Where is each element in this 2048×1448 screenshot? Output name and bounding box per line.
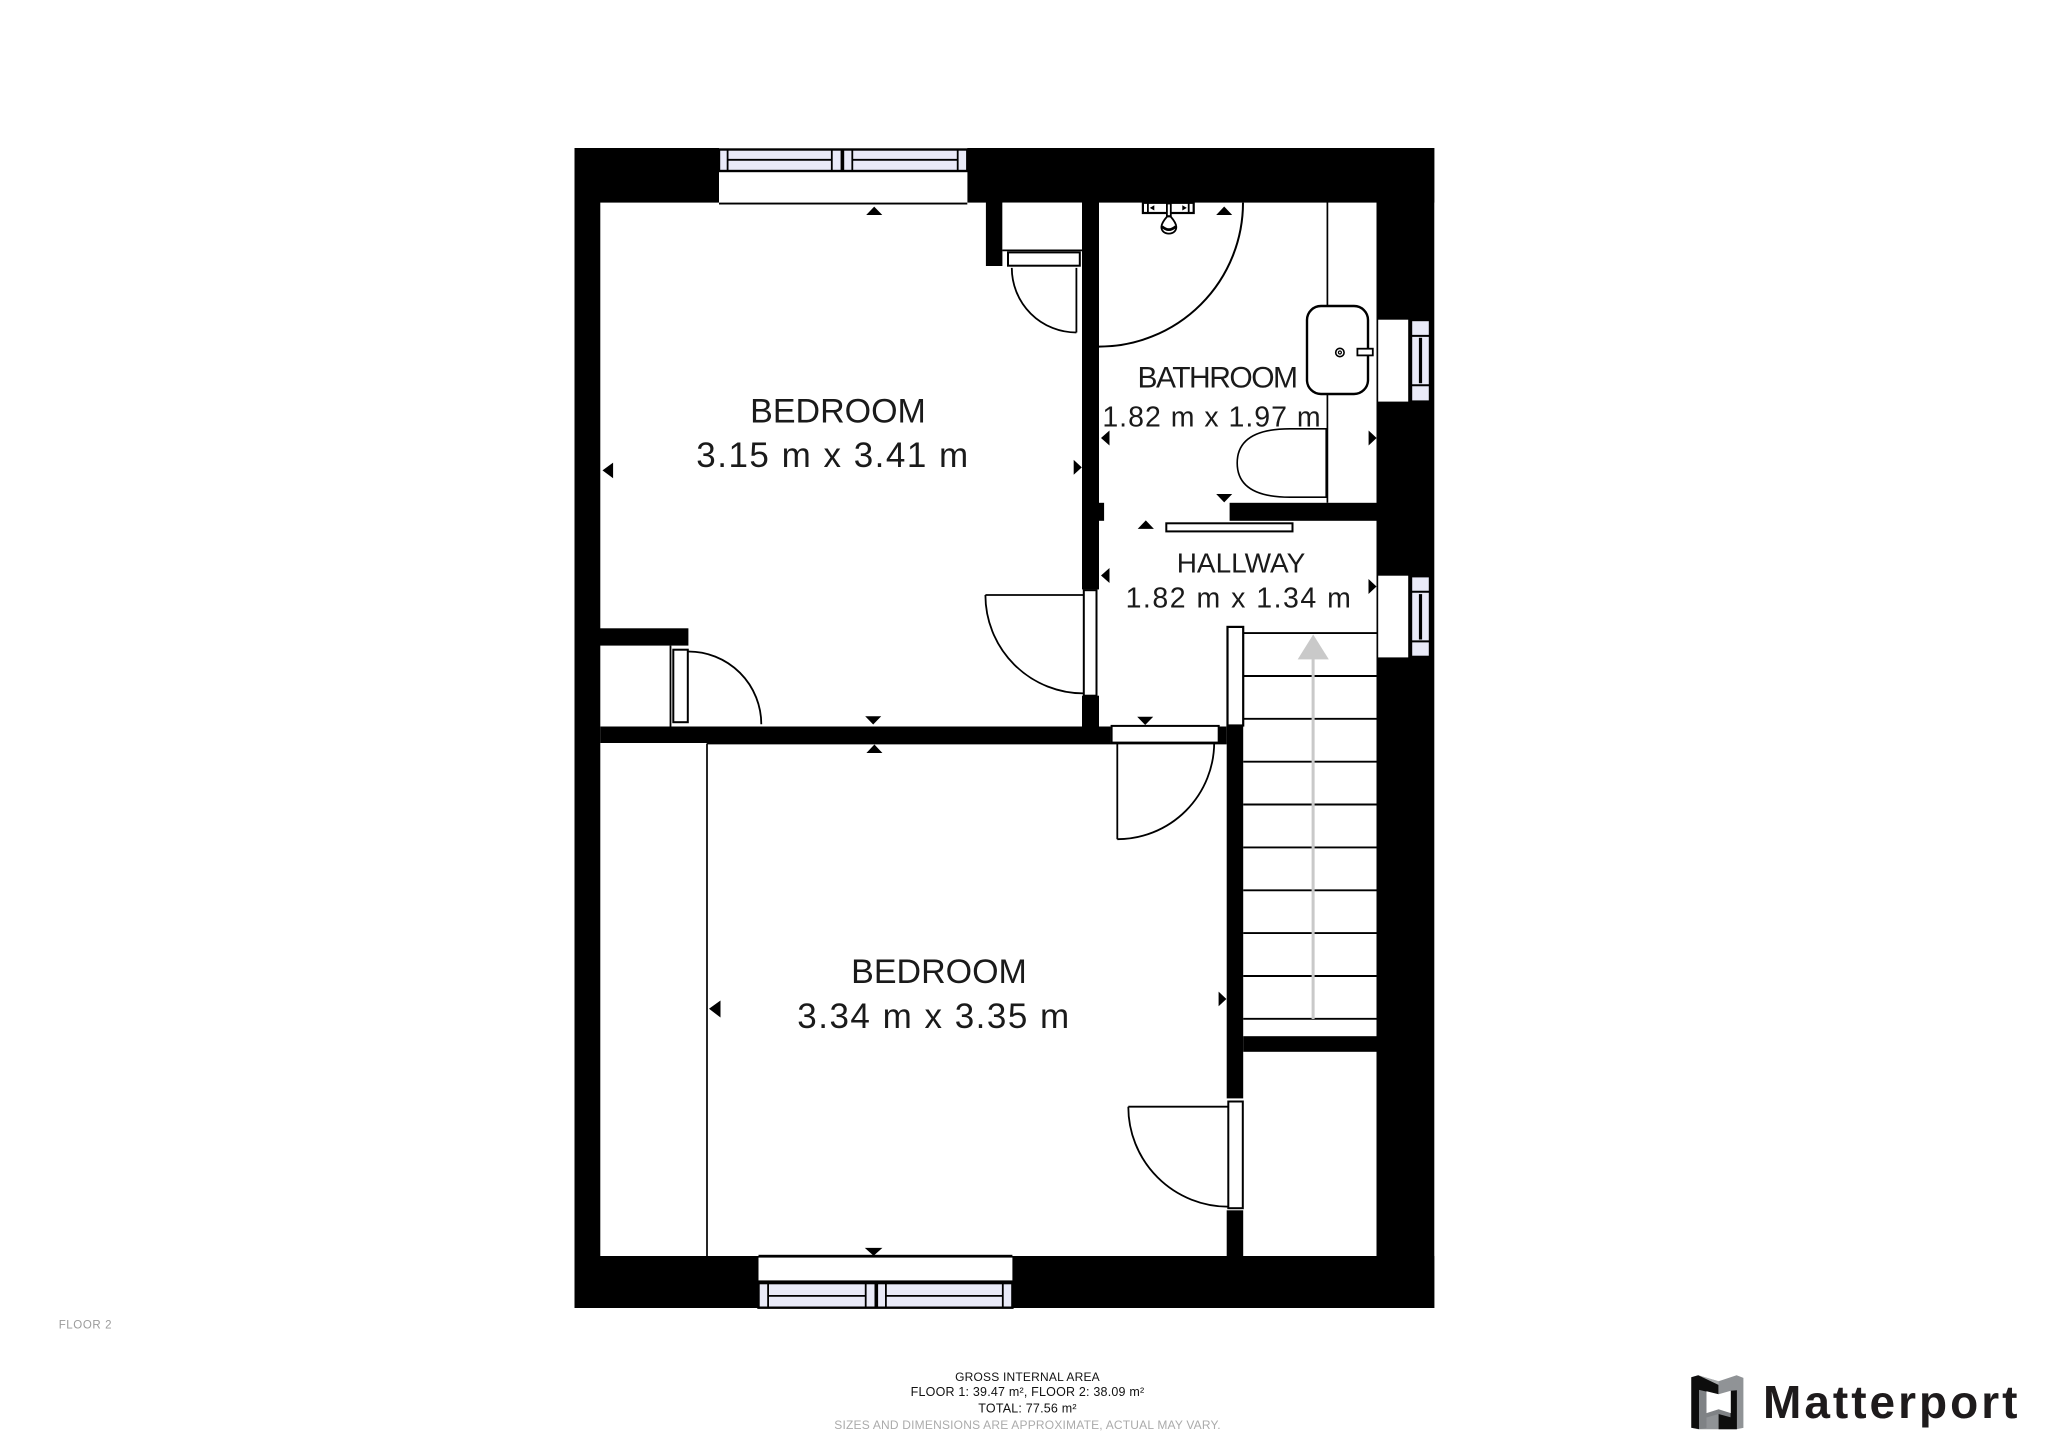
- svg-text:3.15 m x 3.41 m: 3.15 m x 3.41 m: [696, 436, 969, 475]
- svg-text:HALLWAY: HALLWAY: [1177, 548, 1306, 579]
- svg-text:BEDROOM: BEDROOM: [851, 953, 1027, 991]
- svg-text:SIZES AND DIMENSIONS ARE APPRO: SIZES AND DIMENSIONS ARE APPROXIMATE, AC…: [834, 1418, 1220, 1432]
- svg-text:FLOOR 2: FLOOR 2: [59, 1320, 112, 1332]
- svg-text:Matterport: Matterport: [1763, 1376, 2020, 1428]
- svg-text:BATHROOM: BATHROOM: [1137, 362, 1296, 395]
- svg-text:GROSS INTERNAL AREA: GROSS INTERNAL AREA: [955, 1370, 1100, 1384]
- svg-text:BEDROOM: BEDROOM: [750, 393, 926, 431]
- svg-text:3.34 m x 3.35 m: 3.34 m x 3.35 m: [797, 997, 1070, 1036]
- svg-text:TOTAL: 77.56 m²: TOTAL: 77.56 m²: [978, 1402, 1076, 1416]
- svg-text:FLOOR 1: 39.47 m², FLOOR 2: 38: FLOOR 1: 39.47 m², FLOOR 2: 38.09 m²: [911, 1385, 1145, 1399]
- svg-text:1.82 m x 1.34 m: 1.82 m x 1.34 m: [1126, 583, 1353, 615]
